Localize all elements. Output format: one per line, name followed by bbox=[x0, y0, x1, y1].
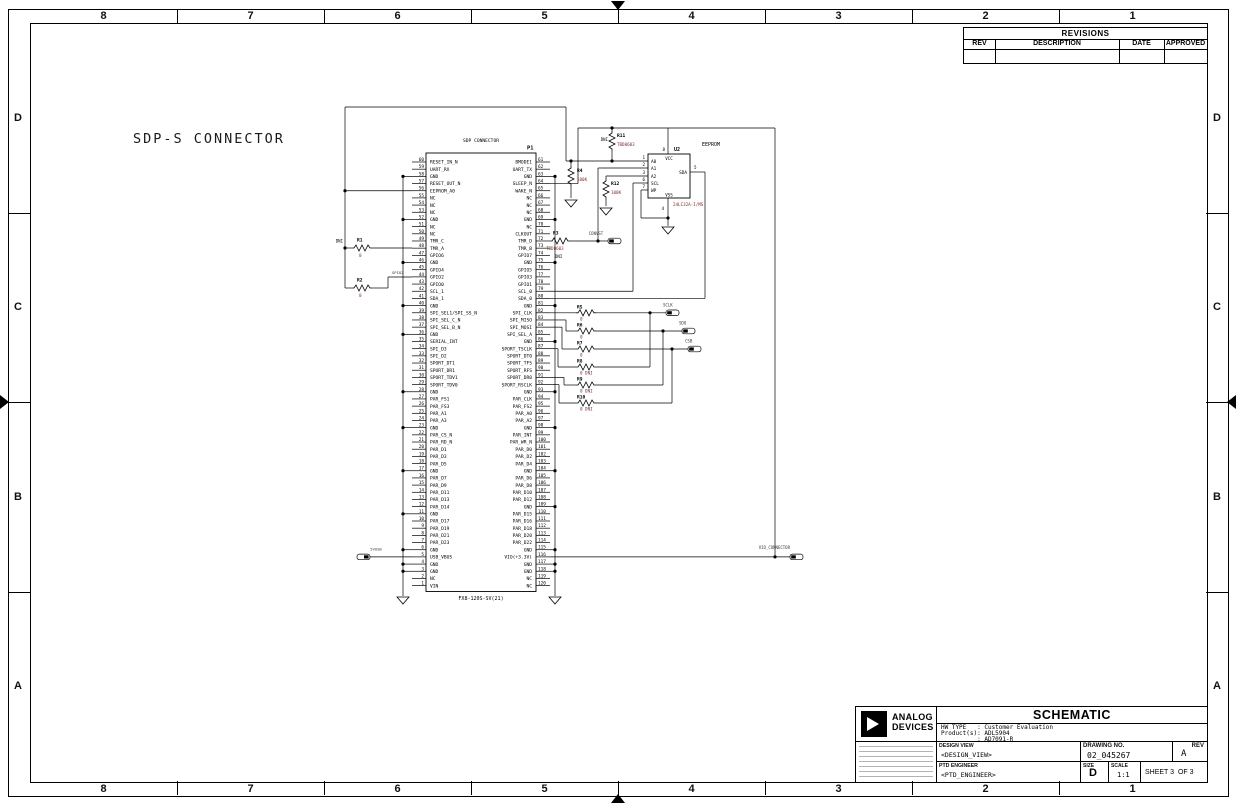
svg-text:NC: NC bbox=[430, 232, 436, 238]
svg-text:30: 30 bbox=[419, 372, 425, 378]
svg-text:61: 61 bbox=[538, 157, 544, 163]
svg-text:PAR_CS_N: PAR_CS_N bbox=[430, 433, 452, 439]
svg-text:103: 103 bbox=[538, 459, 546, 465]
svg-text:29: 29 bbox=[419, 380, 425, 386]
svg-text:2: 2 bbox=[642, 162, 645, 167]
svg-text:0 DNI: 0 DNI bbox=[580, 407, 593, 412]
svg-text:GND: GND bbox=[430, 562, 439, 568]
svg-text:SDP CONNECTOR: SDP CONNECTOR bbox=[463, 138, 499, 144]
svg-text:13: 13 bbox=[419, 494, 425, 500]
svg-text:GPIO6: GPIO6 bbox=[430, 253, 444, 259]
svg-text:NC: NC bbox=[526, 583, 532, 589]
resistor-symbol bbox=[576, 364, 596, 370]
svg-text:115: 115 bbox=[538, 545, 546, 551]
svg-text:91: 91 bbox=[538, 372, 544, 378]
svg-text:PAR_FS3: PAR_FS3 bbox=[430, 404, 450, 410]
svg-text:54: 54 bbox=[419, 200, 425, 206]
svg-text:GND: GND bbox=[524, 260, 533, 266]
svg-text:85: 85 bbox=[538, 329, 544, 335]
svg-text:TMR_C: TMR_C bbox=[430, 239, 444, 245]
svg-text:GND: GND bbox=[430, 512, 439, 518]
svg-text:VIO(+3.3V): VIO(+3.3V) bbox=[504, 555, 532, 561]
svg-text:GPIO0: GPIO0 bbox=[430, 282, 444, 288]
hw-type-product-info: HW TYPE : Customer Evaluation Product(s)… bbox=[937, 724, 1207, 742]
svg-text:6: 6 bbox=[421, 545, 424, 551]
svg-text:PAR_D6: PAR_D6 bbox=[515, 476, 532, 482]
svg-text:R11: R11 bbox=[617, 133, 626, 139]
svg-text:55: 55 bbox=[419, 193, 425, 199]
svg-text:41: 41 bbox=[419, 293, 425, 299]
drawing-no-cell: DRAWING NO. 02_045267 bbox=[1081, 742, 1173, 762]
svg-text:SCL_1: SCL_1 bbox=[430, 289, 444, 295]
svg-text:80: 80 bbox=[538, 293, 544, 299]
resistor-symbol bbox=[576, 328, 596, 334]
svg-text:95: 95 bbox=[538, 401, 544, 407]
svg-text:26: 26 bbox=[419, 401, 425, 407]
svg-text:PAR_D13: PAR_D13 bbox=[430, 497, 450, 503]
svg-text:70: 70 bbox=[538, 222, 544, 228]
svg-text:32: 32 bbox=[419, 358, 425, 364]
svg-text:0: 0 bbox=[580, 316, 583, 321]
svg-text:SPI_SEL1/SPI_SS_N: SPI_SEL1/SPI_SS_N bbox=[430, 310, 477, 316]
svg-text:0 DNI: 0 DNI bbox=[580, 389, 593, 394]
svg-text:GND: GND bbox=[524, 547, 533, 553]
net-flag-icon bbox=[666, 310, 679, 316]
svg-text:NC: NC bbox=[430, 224, 436, 230]
resistor-symbol bbox=[603, 179, 609, 199]
svg-text:WAKE_N: WAKE_N bbox=[515, 188, 532, 194]
svg-text:GND: GND bbox=[524, 468, 533, 474]
svg-text:GPIO2: GPIO2 bbox=[392, 270, 403, 275]
svg-text:NC: NC bbox=[526, 196, 532, 202]
svg-text:28: 28 bbox=[419, 387, 425, 393]
svg-text:5: 5 bbox=[421, 552, 424, 558]
svg-text:GND: GND bbox=[430, 303, 439, 309]
logo-line2: DEVICES bbox=[892, 722, 934, 732]
svg-text:96: 96 bbox=[538, 408, 544, 414]
svg-text:104: 104 bbox=[538, 466, 546, 472]
svg-text:117: 117 bbox=[538, 559, 546, 565]
svg-text:82: 82 bbox=[538, 308, 544, 314]
svg-text:EEPROM: EEPROM bbox=[702, 142, 720, 148]
svg-text:PAR_D10: PAR_D10 bbox=[513, 490, 533, 496]
svg-text:PAR_D18: PAR_D18 bbox=[513, 526, 533, 532]
svg-text:RESET_OUT_N: RESET_OUT_N bbox=[430, 181, 461, 187]
svg-text:39: 39 bbox=[419, 308, 425, 314]
svg-text:SPI_D2: SPI_D2 bbox=[430, 354, 447, 360]
svg-text:PAR_D2: PAR_D2 bbox=[515, 454, 532, 460]
svg-text:7: 7 bbox=[642, 184, 645, 189]
svg-text:102: 102 bbox=[538, 451, 546, 457]
svg-text:SPORT_RSCLK: SPORT_RSCLK bbox=[502, 382, 533, 388]
svg-text:20: 20 bbox=[419, 444, 425, 450]
svg-text:R3: R3 bbox=[553, 231, 559, 237]
svg-text:CSB: CSB bbox=[685, 339, 693, 344]
svg-text:65: 65 bbox=[538, 186, 544, 192]
svg-text:PAR_D8: PAR_D8 bbox=[515, 483, 532, 489]
design-view-value: <DESIGN_VIEW> bbox=[941, 751, 992, 759]
scale-cell: SCALE 1:1 bbox=[1109, 762, 1141, 782]
scale-value: 1:1 bbox=[1117, 771, 1130, 779]
ground-symbol bbox=[397, 597, 409, 604]
svg-text:SPORT_DT1: SPORT_DT1 bbox=[430, 361, 455, 367]
svg-text:WP: WP bbox=[651, 188, 657, 194]
svg-text:R4: R4 bbox=[577, 168, 583, 174]
svg-text:VIN: VIN bbox=[430, 583, 439, 589]
schematic-sheet: 8877665544332211DDCCBBAA SDP-S CONNECTOR… bbox=[0, 0, 1236, 804]
svg-text:PAR_FS1: PAR_FS1 bbox=[430, 397, 450, 403]
svg-text:PAR_D1: PAR_D1 bbox=[430, 447, 447, 453]
svg-text:SPI_SEL_A: SPI_SEL_A bbox=[507, 332, 532, 338]
schematic-canvas: SDP CONNECTORP1FX8-120S-SV(21)60RESET_IN… bbox=[0, 0, 1236, 804]
svg-text:77: 77 bbox=[538, 272, 544, 278]
connector-p1: SDP CONNECTORP1FX8-120S-SV(21)60RESET_IN… bbox=[412, 138, 550, 602]
svg-text:81: 81 bbox=[538, 301, 544, 307]
svg-text:48: 48 bbox=[419, 243, 425, 249]
design-view-cell: DESIGN VIEW <DESIGN_VIEW> bbox=[937, 742, 1081, 762]
design-view-label: DESIGN VIEW bbox=[939, 743, 974, 749]
svg-text:108: 108 bbox=[538, 494, 546, 500]
svg-text:SPI_SEL_C_N: SPI_SEL_C_N bbox=[430, 318, 461, 324]
svg-text:46: 46 bbox=[419, 258, 425, 264]
svg-text:62: 62 bbox=[538, 164, 544, 170]
svg-text:86: 86 bbox=[538, 337, 544, 343]
svg-text:TMR_B: TMR_B bbox=[518, 246, 532, 252]
svg-text:BMODE1: BMODE1 bbox=[515, 160, 532, 166]
svg-text:PAR_INT: PAR_INT bbox=[513, 433, 533, 439]
svg-text:R1: R1 bbox=[357, 238, 363, 244]
svg-text:84: 84 bbox=[538, 322, 544, 328]
svg-text:53: 53 bbox=[419, 207, 425, 213]
svg-text:A2: A2 bbox=[651, 174, 657, 180]
svg-text:69: 69 bbox=[538, 214, 544, 220]
svg-text:SPORT_DR1: SPORT_DR1 bbox=[430, 368, 455, 374]
resistor-symbol bbox=[352, 245, 372, 251]
disclaimer-cell bbox=[856, 742, 937, 782]
svg-text:56: 56 bbox=[419, 186, 425, 192]
svg-text:44: 44 bbox=[419, 272, 425, 278]
svg-text:78: 78 bbox=[538, 279, 544, 285]
svg-text:113: 113 bbox=[538, 530, 546, 536]
svg-text:R10: R10 bbox=[577, 395, 586, 401]
svg-text:34: 34 bbox=[419, 344, 425, 350]
svg-text:89: 89 bbox=[538, 358, 544, 364]
svg-text:SPI_D3: SPI_D3 bbox=[430, 346, 447, 352]
svg-text:15: 15 bbox=[419, 480, 425, 486]
svg-text:57: 57 bbox=[419, 179, 425, 185]
svg-text:100: 100 bbox=[538, 437, 546, 443]
svg-text:PAR_D17: PAR_D17 bbox=[430, 519, 450, 525]
svg-text:110: 110 bbox=[538, 509, 546, 515]
logo-cell: ANALOG DEVICES bbox=[856, 707, 937, 742]
net-flag-icon bbox=[682, 328, 695, 334]
svg-text:42: 42 bbox=[419, 286, 425, 292]
ground-symbol bbox=[549, 597, 561, 604]
svg-text:21: 21 bbox=[419, 437, 425, 443]
svg-text:R9: R9 bbox=[577, 377, 583, 383]
ptd-engineer-label: PTD ENGINEER bbox=[939, 763, 978, 769]
svg-text:99: 99 bbox=[538, 430, 544, 436]
svg-text:3: 3 bbox=[642, 170, 645, 175]
svg-text:GND: GND bbox=[524, 569, 533, 575]
svg-text:GND: GND bbox=[430, 569, 439, 575]
svg-text:PAR_D22: PAR_D22 bbox=[513, 540, 533, 546]
disclaimer-fine-print bbox=[859, 746, 933, 778]
sheet-cell: SHEET 3 OF 3 bbox=[1141, 762, 1207, 782]
svg-text:SCL_0: SCL_0 bbox=[518, 289, 532, 295]
svg-text:NC: NC bbox=[526, 203, 532, 209]
resistor-symbol bbox=[576, 382, 596, 388]
svg-text:NC: NC bbox=[526, 576, 532, 582]
svg-text:UART_RX: UART_RX bbox=[430, 167, 450, 173]
svg-text:TBD0603: TBD0603 bbox=[617, 142, 635, 147]
ptd-engineer-cell: PTD ENGINEER <PTD_ENGINEER> bbox=[937, 762, 1081, 782]
logo-text: ANALOG DEVICES bbox=[892, 712, 934, 732]
svg-text:A0: A0 bbox=[651, 159, 657, 165]
svg-text:PAR_D3: PAR_D3 bbox=[430, 454, 447, 460]
svg-text:16: 16 bbox=[419, 473, 425, 479]
svg-text:22: 22 bbox=[419, 430, 425, 436]
svg-text:PAR_FS2: PAR_FS2 bbox=[513, 404, 533, 410]
svg-text:SDO: SDO bbox=[679, 321, 687, 326]
svg-text:NC: NC bbox=[526, 224, 532, 230]
pin-row-61: 61BMODE1 bbox=[515, 157, 550, 166]
svg-text:35: 35 bbox=[419, 337, 425, 343]
svg-text:PAR_RD_N: PAR_RD_N bbox=[430, 440, 452, 446]
svg-text:GND: GND bbox=[524, 562, 533, 568]
svg-text:8: 8 bbox=[662, 147, 665, 152]
svg-text:PAR_D15: PAR_D15 bbox=[513, 512, 533, 518]
svg-text:PAR_D12: PAR_D12 bbox=[513, 497, 533, 503]
ground-symbol bbox=[600, 208, 612, 215]
svg-text:SDA_0: SDA_0 bbox=[518, 296, 532, 302]
svg-text:GND: GND bbox=[430, 389, 439, 395]
svg-text:111: 111 bbox=[538, 516, 546, 522]
svg-text:5VUSB: 5VUSB bbox=[370, 547, 382, 552]
rev-value: A bbox=[1181, 749, 1186, 759]
svg-text:7: 7 bbox=[421, 538, 424, 544]
svg-text:GND: GND bbox=[430, 547, 439, 553]
svg-text:83: 83 bbox=[538, 315, 544, 321]
svg-text:14: 14 bbox=[419, 487, 425, 493]
svg-text:40: 40 bbox=[419, 301, 425, 307]
svg-text:GND: GND bbox=[430, 260, 439, 266]
svg-text:FX8-120S-SV(21): FX8-120S-SV(21) bbox=[458, 596, 503, 602]
svg-text:43: 43 bbox=[419, 279, 425, 285]
svg-text:3: 3 bbox=[421, 566, 424, 572]
svg-text:59: 59 bbox=[419, 164, 425, 170]
svg-text:GND: GND bbox=[430, 468, 439, 474]
title-block: ANALOG DEVICES SCHEMATIC HW TYPE : Custo… bbox=[855, 706, 1208, 783]
svg-text:TMR_A: TMR_A bbox=[430, 246, 444, 252]
svg-text:94: 94 bbox=[538, 394, 544, 400]
svg-text:0: 0 bbox=[580, 353, 583, 358]
svg-text:12: 12 bbox=[419, 502, 425, 508]
svg-text:PAR_D21: PAR_D21 bbox=[430, 533, 450, 539]
svg-text:114: 114 bbox=[538, 538, 546, 544]
svg-text:GPIO7: GPIO7 bbox=[518, 253, 532, 259]
svg-text:6: 6 bbox=[642, 177, 645, 182]
svg-text:PAR_D9: PAR_D9 bbox=[430, 483, 447, 489]
svg-text:93: 93 bbox=[538, 387, 544, 393]
svg-text:GPIO2: GPIO2 bbox=[430, 275, 444, 281]
svg-text:GPIO5: GPIO5 bbox=[518, 267, 532, 273]
svg-text:PAR_WR_N: PAR_WR_N bbox=[510, 440, 532, 446]
svg-text:GPIO3: GPIO3 bbox=[518, 275, 532, 281]
svg-text:DNI: DNI bbox=[336, 239, 344, 244]
svg-text:R12: R12 bbox=[611, 181, 620, 187]
svg-text:11: 11 bbox=[419, 509, 425, 515]
svg-text:51: 51 bbox=[419, 222, 425, 228]
svg-text:37: 37 bbox=[419, 322, 425, 328]
size-cell: SIZE D bbox=[1081, 762, 1109, 782]
svg-text:67: 67 bbox=[538, 200, 544, 206]
logo-line1: ANALOG bbox=[892, 712, 934, 722]
svg-text:31: 31 bbox=[419, 365, 425, 371]
svg-text:PAR_D23: PAR_D23 bbox=[430, 540, 450, 546]
svg-text:49: 49 bbox=[419, 236, 425, 242]
svg-text:0: 0 bbox=[580, 335, 583, 340]
svg-text:GND: GND bbox=[430, 174, 439, 180]
svg-text:NC: NC bbox=[526, 210, 532, 216]
svg-text:45: 45 bbox=[419, 265, 425, 271]
svg-text:RESET_IN_N: RESET_IN_N bbox=[430, 160, 458, 166]
svg-text:VCC: VCC bbox=[665, 156, 673, 161]
net-flag-icon bbox=[357, 554, 370, 560]
svg-text:NC: NC bbox=[430, 203, 436, 209]
svg-text:SPI_CLK: SPI_CLK bbox=[513, 310, 533, 316]
svg-text:98: 98 bbox=[538, 423, 544, 429]
svg-text:2: 2 bbox=[421, 573, 424, 579]
svg-text:17: 17 bbox=[419, 466, 425, 472]
svg-text:SPI_SEL_B_N: SPI_SEL_B_N bbox=[430, 325, 461, 331]
svg-text:A1: A1 bbox=[651, 166, 657, 172]
ground-symbol bbox=[565, 200, 577, 207]
svg-text:63: 63 bbox=[538, 171, 544, 177]
svg-text:PAR_D16: PAR_D16 bbox=[513, 519, 533, 525]
svg-text:NC: NC bbox=[430, 196, 436, 202]
svg-text:SPORT_TDV0: SPORT_TDV0 bbox=[430, 382, 458, 388]
svg-text:PAR_D20: PAR_D20 bbox=[513, 533, 533, 539]
svg-text:1: 1 bbox=[421, 581, 424, 587]
svg-text:PAR_D11: PAR_D11 bbox=[430, 490, 450, 496]
svg-text:R8: R8 bbox=[577, 359, 583, 365]
pin-row-49: 49TMR_C bbox=[412, 236, 444, 245]
svg-text:GND: GND bbox=[524, 303, 533, 309]
svg-text:UART_TX: UART_TX bbox=[513, 167, 533, 173]
svg-text:4: 4 bbox=[661, 206, 664, 211]
svg-text:76: 76 bbox=[538, 265, 544, 271]
svg-text:0: 0 bbox=[359, 253, 362, 258]
pin-row-71: 71CLKOUT bbox=[515, 229, 550, 238]
svg-text:119: 119 bbox=[538, 573, 546, 579]
svg-text:SPI_MISO: SPI_MISO bbox=[510, 318, 532, 324]
drawing-no-label: DRAWING NO. bbox=[1083, 743, 1124, 749]
svg-text:CLKOUT: CLKOUT bbox=[515, 232, 532, 238]
svg-text:TBD0603: TBD0603 bbox=[546, 246, 564, 251]
svg-text:VIO_CONNECTOR: VIO_CONNECTOR bbox=[759, 545, 791, 550]
resistor-symbol bbox=[568, 166, 574, 186]
svg-text:112: 112 bbox=[538, 523, 546, 529]
svg-text:88: 88 bbox=[538, 351, 544, 357]
svg-text:107: 107 bbox=[538, 487, 546, 493]
svg-text:PAR_A2: PAR_A2 bbox=[515, 418, 532, 424]
svg-text:R2: R2 bbox=[357, 278, 363, 284]
svg-text:75: 75 bbox=[538, 258, 544, 264]
svg-text:71: 71 bbox=[538, 229, 544, 235]
svg-text:109: 109 bbox=[538, 502, 546, 508]
svg-text:38: 38 bbox=[419, 315, 425, 321]
svg-text:27: 27 bbox=[419, 394, 425, 400]
logo-triangle-icon bbox=[867, 717, 879, 731]
svg-text:SCLK: SCLK bbox=[663, 303, 673, 308]
svg-text:4: 4 bbox=[421, 559, 424, 565]
svg-text:PAR_D7: PAR_D7 bbox=[430, 476, 447, 482]
svg-text:GND: GND bbox=[524, 339, 533, 345]
svg-text:PAR_D4: PAR_D4 bbox=[515, 461, 532, 467]
svg-text:72: 72 bbox=[538, 236, 544, 242]
svg-text:73: 73 bbox=[538, 243, 544, 249]
svg-text:SLEEP_N: SLEEP_N bbox=[513, 181, 533, 187]
svg-text:SPORT_TFS: SPORT_TFS bbox=[507, 361, 532, 367]
svg-text:92: 92 bbox=[538, 380, 544, 386]
ptd-engineer-value: <PTD_ENGINEER> bbox=[941, 771, 996, 779]
svg-text:19: 19 bbox=[419, 451, 425, 457]
svg-text:SPORT_RFS: SPORT_RFS bbox=[507, 368, 532, 374]
svg-text:DNI: DNI bbox=[555, 254, 563, 259]
svg-text:SPORT_TDV1: SPORT_TDV1 bbox=[430, 375, 458, 381]
svg-text:0 DNI: 0 DNI bbox=[580, 371, 593, 376]
svg-text:120: 120 bbox=[538, 581, 546, 587]
pin-row-45: 45GPIO4 bbox=[412, 265, 444, 274]
svg-text:EEPROM_A0: EEPROM_A0 bbox=[430, 188, 455, 194]
net-flag-icon bbox=[608, 238, 621, 244]
svg-text:10: 10 bbox=[419, 516, 425, 522]
svg-text:GND: GND bbox=[524, 217, 533, 223]
svg-text:25: 25 bbox=[419, 408, 425, 414]
svg-text:PAR_CLK: PAR_CLK bbox=[513, 397, 533, 403]
svg-text:PAR_D19: PAR_D19 bbox=[430, 526, 450, 532]
svg-text:101: 101 bbox=[538, 444, 546, 450]
svg-text:116: 116 bbox=[538, 552, 546, 558]
svg-text:PAR_D5: PAR_D5 bbox=[430, 461, 447, 467]
resistor-symbol bbox=[352, 285, 372, 291]
svg-text:GND: GND bbox=[524, 425, 533, 431]
svg-text:NC: NC bbox=[430, 210, 436, 216]
svg-text:8: 8 bbox=[421, 530, 424, 536]
svg-text:PAR_D14: PAR_D14 bbox=[430, 504, 450, 510]
drawing-no-value: 02_045267 bbox=[1087, 751, 1130, 760]
svg-text:SPORT_DR0: SPORT_DR0 bbox=[507, 375, 532, 381]
svg-text:PAR_A3: PAR_A3 bbox=[430, 418, 447, 424]
ground-symbol bbox=[662, 227, 674, 234]
svg-text:97: 97 bbox=[538, 415, 544, 421]
svg-text:GND: GND bbox=[524, 389, 533, 395]
svg-text:GND: GND bbox=[430, 425, 439, 431]
svg-text:PAR_A1: PAR_A1 bbox=[430, 411, 447, 417]
svg-text:50: 50 bbox=[419, 229, 425, 235]
svg-text:GPIO4: GPIO4 bbox=[430, 267, 444, 273]
size-value: D bbox=[1089, 767, 1097, 779]
svg-text:SPORT_TSCLK: SPORT_TSCLK bbox=[502, 346, 533, 352]
rev-label: REV bbox=[1192, 743, 1204, 749]
svg-text:R5: R5 bbox=[577, 304, 583, 310]
svg-text:USB_VBUS: USB_VBUS bbox=[430, 555, 452, 561]
resistor-symbol bbox=[550, 238, 570, 244]
svg-text:60: 60 bbox=[419, 157, 425, 163]
svg-text:23: 23 bbox=[419, 423, 425, 429]
schematic-title: SCHEMATIC bbox=[937, 707, 1207, 724]
